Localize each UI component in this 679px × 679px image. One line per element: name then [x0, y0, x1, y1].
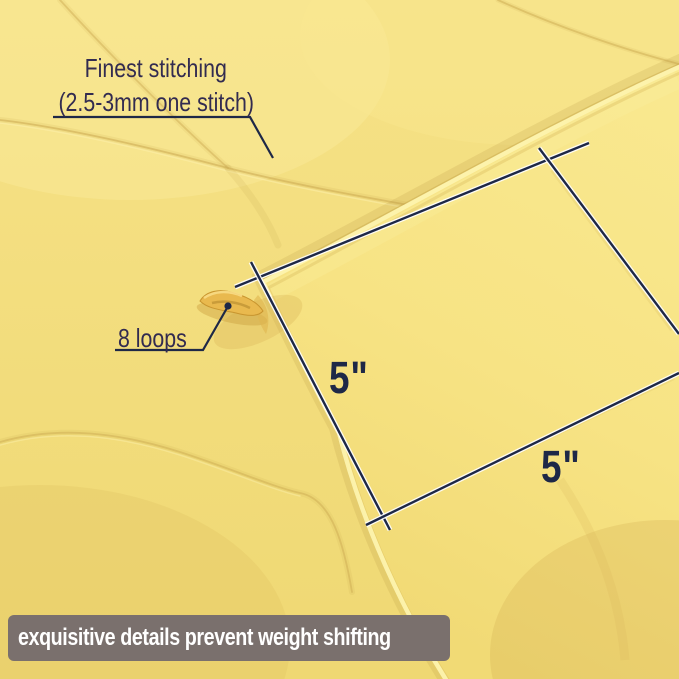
stitching-label: Finest stitching (2.5-3mm one stitch) [18, 51, 294, 119]
product-image: Finest stitching (2.5-3mm one stitch) 8 … [0, 0, 679, 679]
loop-pointer-dot [224, 302, 231, 309]
dimension-label-bottom: 5" [541, 444, 589, 489]
stitching-label-line2: (2.5-3mm one stitch) [58, 85, 253, 119]
caption-banner: exquisitive details prevent weight shift… [8, 615, 450, 661]
stitching-label-line1: Finest stitching [85, 51, 227, 85]
loops-label: 8 loops [118, 321, 202, 355]
caption-banner-text: exquisitive details prevent weight shift… [18, 624, 391, 652]
dimension-label-left: 5" [329, 355, 377, 400]
